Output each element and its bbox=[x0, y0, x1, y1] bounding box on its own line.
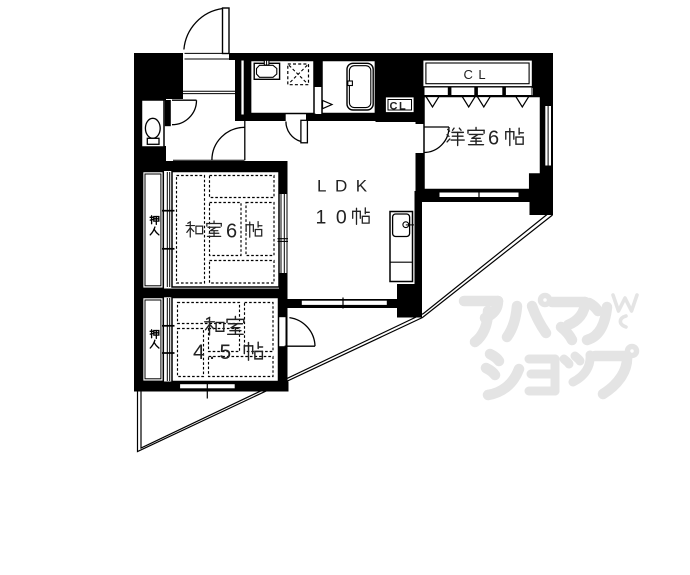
svg-text:6: 6 bbox=[226, 221, 237, 243]
svg-text:10: 10 bbox=[316, 207, 357, 229]
svg-text:4.5: 4.5 bbox=[193, 341, 236, 364]
svg-text:LDK: LDK bbox=[317, 177, 376, 196]
svg-text:6: 6 bbox=[488, 128, 499, 150]
svg-text:CL: CL bbox=[464, 67, 492, 82]
svg-text:CL: CL bbox=[390, 101, 408, 113]
